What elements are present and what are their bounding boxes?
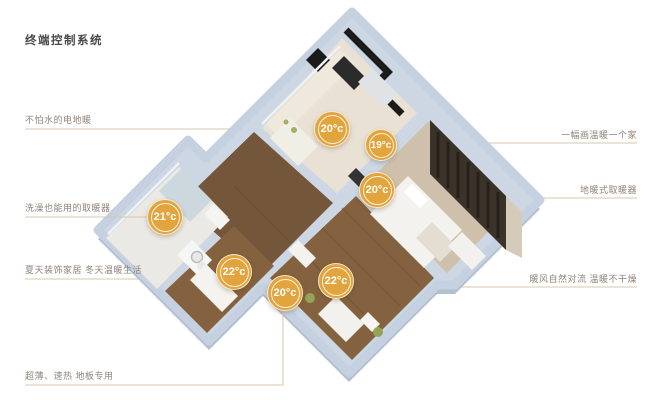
- annotation-floor-style: 地暖式取暖器: [580, 183, 637, 196]
- temperature-badge-kitchen[interactable]: 20°c: [314, 111, 350, 147]
- temperature-badge-wall[interactable]: 19°c: [365, 129, 397, 161]
- temperature-badge-living[interactable]: 20°c: [267, 275, 303, 311]
- temperature-badge-dining[interactable]: 22°c: [318, 263, 354, 299]
- temperature-badge-lounge[interactable]: 22°c: [216, 254, 252, 290]
- annotation-floor-heating: 不怕水的电地暖: [25, 113, 92, 126]
- annotation-warm-air: 暖风自然对流 温暖不干燥: [529, 272, 637, 285]
- temperature-badge-bathroom[interactable]: 21°c: [147, 199, 183, 235]
- annotation-decor-warm: 夏天装饰家居 冬天温暖生活: [25, 263, 142, 276]
- annotation-bath-heater: 洗澡也能用的取暖器: [25, 201, 111, 214]
- annotation-thin-fast-heat: 超薄、速热 地板专用: [25, 369, 114, 382]
- annotation-picture-warm: 一幅画温暖一个家: [561, 128, 637, 141]
- terminal-control-screen: 终端控制系统 不怕水的电地暖 洗澡也能用的取暖器 夏天装饰家居 冬天温暖生活 超…: [0, 0, 652, 400]
- page-title: 终端控制系统: [25, 32, 103, 48]
- building: [98, 12, 540, 382]
- temperature-badge-bedroom[interactable]: 20°c: [359, 172, 395, 208]
- apartment-3d-model: [0, 0, 652, 400]
